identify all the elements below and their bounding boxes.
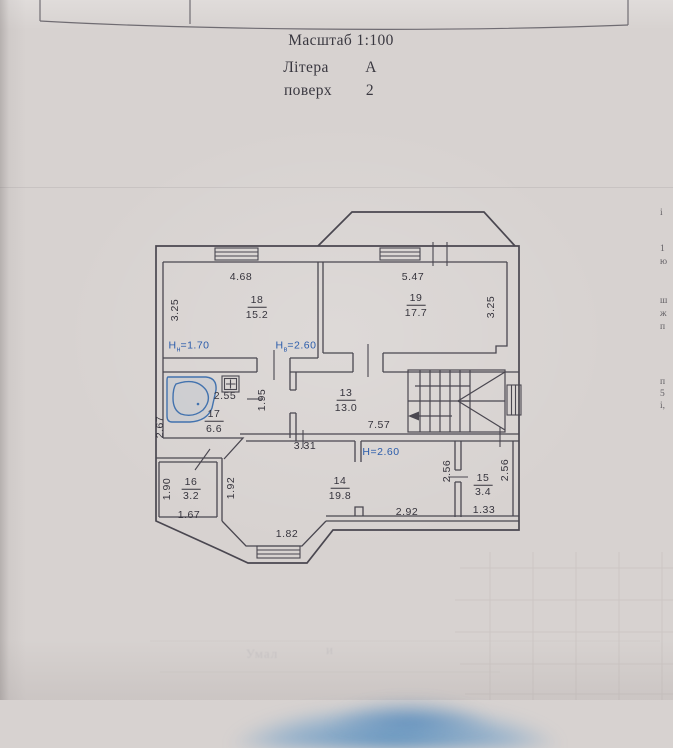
dimension-label: 1.67 [178,510,200,521]
room-area-label: 3.2 [183,491,199,502]
edge-text-fragment: ш [660,296,667,306]
dimension-label: 3.31 [294,441,316,452]
dimension-label: 1.33 [473,505,495,516]
room-number-label: 17 [205,409,224,422]
room-area-label: 6.6 [206,424,222,435]
dimension-label: 7.57 [368,420,390,431]
room-area-label: 3.4 [475,487,491,498]
room-number-label: 16 [182,477,201,490]
plan-labels-layer: 4.683.251815.2Hн=1.70Hв=2.605.471917.73.… [0,0,673,700]
dimension-label: 3.25 [486,296,497,318]
edge-text-fragment: ю [660,257,667,267]
edge-text-fragment: 5 [660,389,665,399]
edge-text-fragment: п [660,377,665,387]
room-area-label: 17.7 [405,308,427,319]
height-label: Hн=1.70 [168,340,209,353]
dimension-label: 2.92 [396,507,418,518]
watermark-fragment: и [326,642,334,658]
edge-text-fragment: 1 [660,244,665,254]
dimension-label: 2.56 [500,459,511,481]
dimension-label: 5.47 [402,272,424,283]
dimension-label: 1.95 [257,389,268,411]
dimension-label: 2.67 [155,416,166,438]
room-number-label: 15 [474,473,493,486]
scanned-floor-plan-page: { "header": { "scale": "Масштаб 1:100", … [0,0,673,700]
dimension-label: 2.56 [442,460,453,482]
edge-text-fragment: і, [660,401,665,411]
room-area-label: 15.2 [246,310,268,321]
room-number-label: 13 [337,388,356,401]
dimension-label: 1.90 [162,478,173,500]
edge-text-fragment: п [660,322,665,332]
dimension-label: 4.68 [230,272,252,283]
edge-text-fragment: ж [660,309,667,319]
watermark-fragment: Умал [246,646,279,662]
dimension-label: 1.82 [276,529,298,540]
room-number-label: 19 [407,293,426,306]
height-label: H=2.60 [362,447,399,458]
room-area-label: 13.0 [335,403,357,414]
room-number-label: 18 [248,295,267,308]
dimension-label: 2.55 [214,391,236,402]
room-number-label: 14 [331,476,350,489]
dimension-label: 3.25 [170,299,181,321]
height-label: Hв=2.60 [276,340,317,353]
room-area-label: 19.8 [329,491,351,502]
edge-text-fragment: і [660,208,663,218]
dimension-label: 1.92 [226,477,237,499]
